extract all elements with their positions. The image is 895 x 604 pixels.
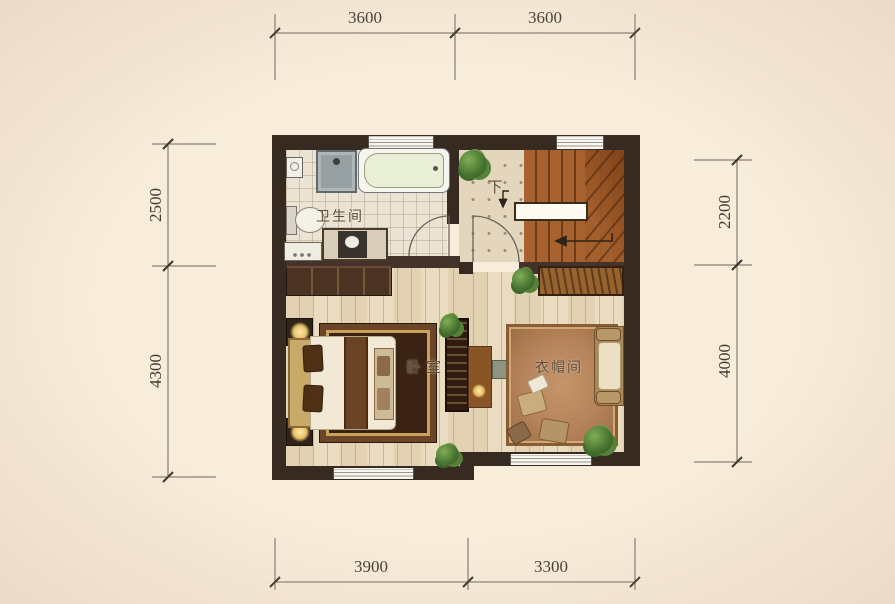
sofa-cushion xyxy=(598,342,621,390)
bathtub-basin xyxy=(364,153,444,188)
bathtub-drain xyxy=(433,166,438,171)
shower-head-icon xyxy=(333,158,340,165)
bed-pillow xyxy=(302,344,323,372)
bathroom-label: 卫生间 xyxy=(298,206,382,226)
plant-icon xyxy=(436,444,459,465)
dim-right-upper: 2200 xyxy=(715,177,735,247)
dim-right-lower: 4000 xyxy=(715,326,735,396)
wall-landing-bottom xyxy=(459,262,473,274)
floorplan-canvas: 卫生间 下 卧室 衣帽间 3600 3600 3900 3300 2500 43… xyxy=(0,0,895,604)
bench-cushion xyxy=(377,388,390,410)
top-dimension xyxy=(270,14,640,80)
dim-left-upper: 2500 xyxy=(146,170,166,240)
plant-icon xyxy=(584,426,613,454)
wall-right xyxy=(624,135,640,466)
plant-icon xyxy=(440,314,460,335)
bed-blanket xyxy=(344,337,368,429)
bed-pillow xyxy=(302,384,323,412)
cloakroom-label: 衣帽间 xyxy=(526,357,592,377)
sofa-arm xyxy=(596,391,621,404)
wall-left xyxy=(272,135,286,480)
window-top-stairs xyxy=(556,136,604,149)
shower-stall xyxy=(316,150,357,193)
stair-winder xyxy=(585,149,624,262)
window-bottom-cloakroom xyxy=(510,454,592,465)
dim-top-right: 3600 xyxy=(510,8,580,28)
stair-handrail xyxy=(514,202,588,221)
cloakroom-wardrobe xyxy=(538,266,624,296)
dim-bottom-left: 3900 xyxy=(336,557,406,577)
plant-icon xyxy=(512,268,535,291)
bench-cushion xyxy=(377,356,390,376)
window-bottom-bedroom xyxy=(333,468,414,479)
washer-icon xyxy=(284,242,322,261)
dim-top-left: 3600 xyxy=(330,8,400,28)
lamp-icon xyxy=(472,384,486,398)
bedroom-wardrobe xyxy=(286,266,392,296)
dim-left-lower: 4300 xyxy=(146,336,166,406)
plant-icon xyxy=(459,150,487,178)
stairs-down-label: 下 xyxy=(484,176,506,197)
dim-bottom-right: 3300 xyxy=(516,557,586,577)
dressing-desk xyxy=(468,346,492,408)
wall-basin-bowl xyxy=(290,162,299,171)
vanity-sink-bowl xyxy=(345,236,359,248)
floor-pouf xyxy=(538,418,569,445)
bedroom-label: 卧室 xyxy=(401,356,451,377)
sofa-arm xyxy=(596,328,621,341)
